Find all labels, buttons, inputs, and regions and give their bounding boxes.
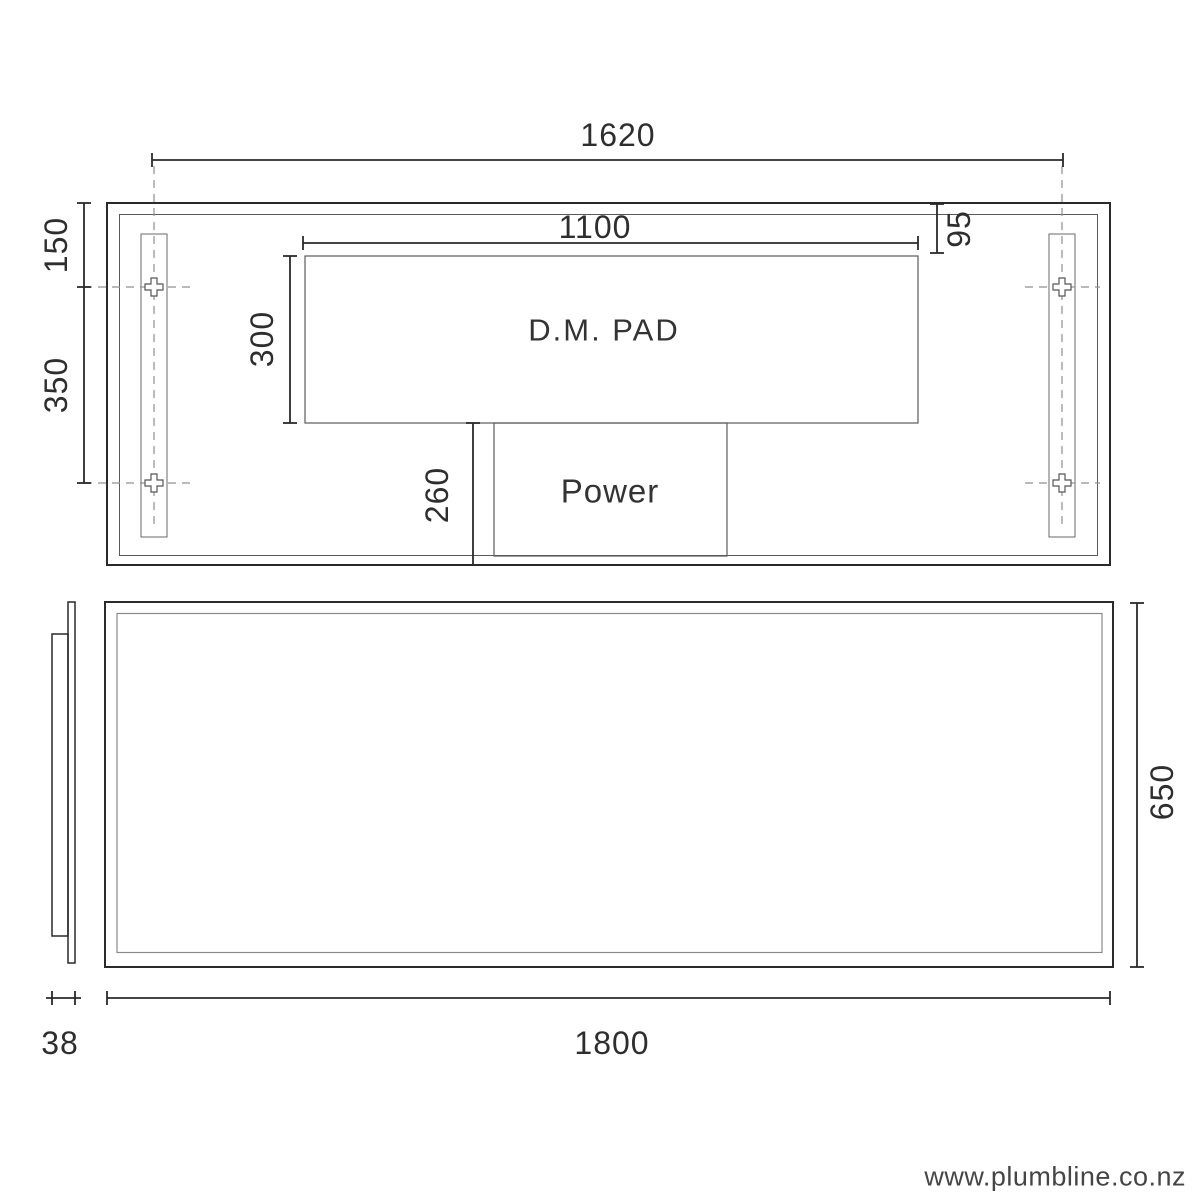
technical-drawing-mirror: 1620 150 350 1100 300 95 260 D.M. PAD Po… [0,0,1200,1200]
dim-label-260: 260 [421,467,453,523]
dim-label-38: 38 [41,1027,79,1059]
screw-hole-cross-icon [1053,278,1071,296]
drawing-linework [0,0,1200,1200]
front-view-inner-edge [117,614,1102,953]
screw-hole-cross-icon [145,278,163,296]
screw-holes [145,278,1071,492]
screw-hole-cross-icon [145,474,163,492]
dim-label-300: 300 [246,311,278,367]
bottom-view-dimensions [46,603,1144,1005]
dim-label-350: 350 [40,357,72,413]
dim-label-150: 150 [40,217,72,273]
screw-hole-cross-icon [1053,474,1071,492]
side-view-backing-panel [52,634,68,936]
dim-label-650: 650 [1146,764,1178,820]
power-label: Power [561,475,660,508]
dm-pad-label: D.M. PAD [528,315,680,346]
front-view-outer-frame [105,602,1113,967]
top-view-outer-body [107,203,1110,565]
side-view-mirror-glass [68,602,75,963]
website-watermark: www.plumbline.co.nz [924,1162,1186,1193]
dim-label-1100: 1100 [559,211,632,243]
dim-label-1800: 1800 [574,1027,649,1059]
dim-label-95: 95 [943,210,975,248]
dim-label-1620: 1620 [580,119,655,151]
